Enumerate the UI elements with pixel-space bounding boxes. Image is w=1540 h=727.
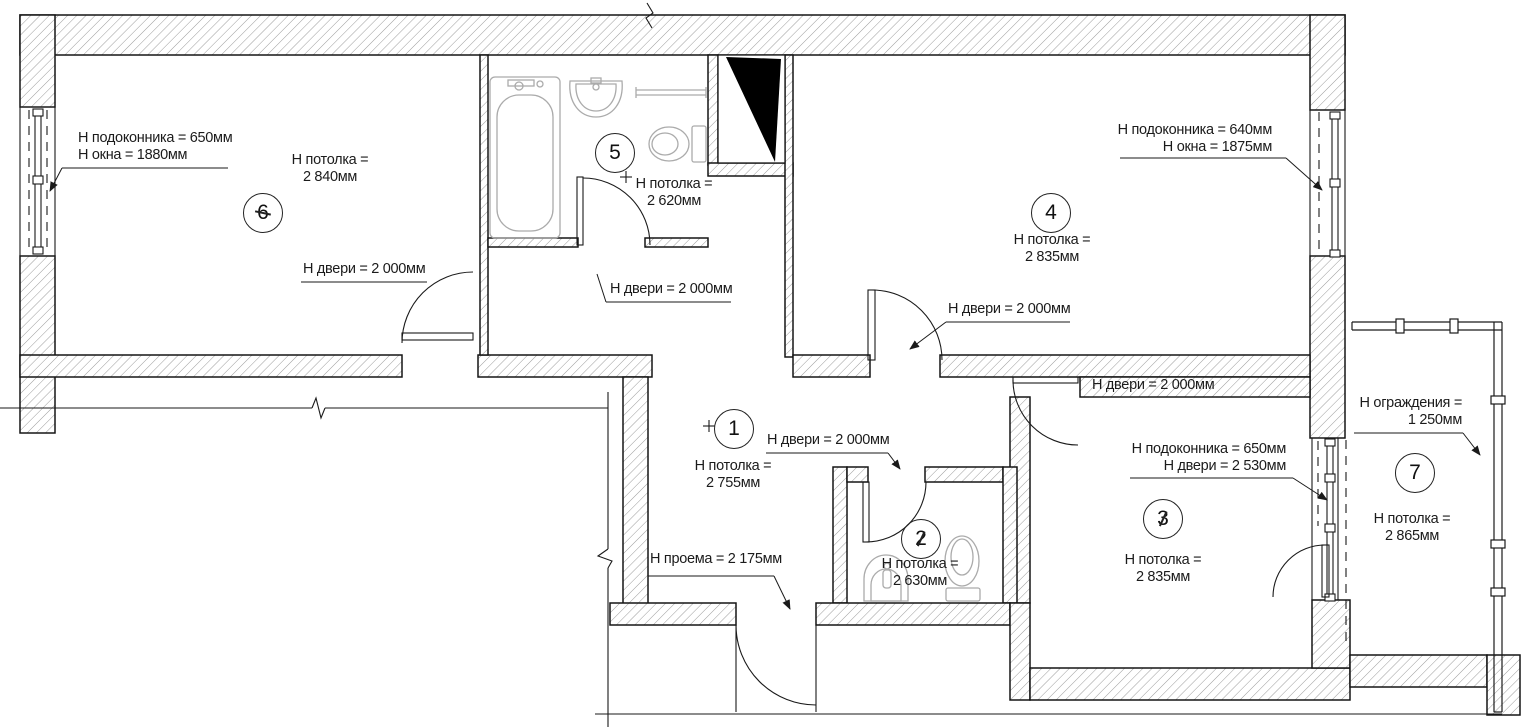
ceiling-value: 2 755мм <box>653 475 813 492</box>
ceiling-value: 2 835мм <box>1083 569 1243 586</box>
room7-ceiling-annotation: Н потолка = 2 865мм <box>1332 511 1492 544</box>
door-height-text: Н двери = 2 000мм <box>610 281 732 298</box>
sill-height-text: Н подоконника = 650мм <box>1086 441 1286 458</box>
room-number: 4 <box>1045 201 1057 225</box>
ceiling-label: Н потолка = <box>972 232 1132 249</box>
opening-height-annotation: Н проема = 2 175мм <box>650 551 782 568</box>
room3-ceiling-annotation: Н потолка = 2 835мм <box>1083 552 1243 585</box>
room-badge-5: 5 <box>595 133 635 173</box>
ceiling-value: 2 865мм <box>1332 528 1492 545</box>
bathroom-toilet <box>649 126 706 162</box>
room2-ceiling-annotation: Н потолка = 2 630мм <box>840 556 1000 589</box>
floor-plan-drawing <box>0 0 1540 727</box>
left-window-annotation: Н подоконника = 650мм Н окна = 1880мм <box>78 130 232 163</box>
railing-label: Н ограждения = <box>1302 395 1462 412</box>
ceiling-label: Н потолка = <box>1332 511 1492 528</box>
door-height-annotation-bathroom: Н двери = 2 000мм <box>610 281 732 298</box>
door-height-annotation-room3: Н двери = 2 000мм <box>1092 377 1214 394</box>
opening-height-text: Н проема = 2 175мм <box>650 551 782 568</box>
towel-rail <box>636 87 706 98</box>
bathtub <box>490 77 560 238</box>
room-badge-4: 4 <box>1031 193 1071 233</box>
door-height-annotation-room6: Н двери = 2 000мм <box>303 261 425 278</box>
door-height-annotation-room4: Н двери = 2 000мм <box>948 301 1070 318</box>
balcony-door-annotation: Н подоконника = 650мм Н двери = 2 530мм <box>1086 441 1286 474</box>
sill-height-text: Н подоконника = 640мм <box>1072 122 1272 139</box>
door-height-text: Н двери = 2 000мм <box>303 261 425 278</box>
door-height-text: Н двери = 2 000мм <box>767 432 889 449</box>
railing-annotation: Н ограждения = 1 250мм <box>1302 395 1462 428</box>
door-height-annotation-wc: Н двери = 2 000мм <box>767 432 889 449</box>
room-number: 5 <box>609 141 621 165</box>
door-height-text: Н двери = 2 000мм <box>1092 377 1214 394</box>
room-badge-6: 6 <box>243 193 283 233</box>
room5-ceiling-annotation: Н потолка = 2 620мм <box>594 176 754 209</box>
floor-plan: 1 2 3 4 5 6 7 Н подоконника = 650мм Н ок… <box>0 0 1540 727</box>
window-height-text: Н окна = 1875мм <box>1072 139 1272 156</box>
ceiling-label: Н потолка = <box>1083 552 1243 569</box>
door-height-text: Н двери = 2 000мм <box>948 301 1070 318</box>
ceiling-label: Н потолка = <box>653 458 813 475</box>
ventilation-shaft <box>718 55 785 163</box>
room-number: 7 <box>1409 461 1421 485</box>
window-left <box>20 107 55 256</box>
room1-ceiling-annotation: Н потолка = 2 755мм <box>653 458 813 491</box>
ceiling-label: Н потолка = <box>594 176 754 193</box>
room-badge-1: 1 <box>714 409 754 449</box>
ceiling-value: 2 835мм <box>972 249 1132 266</box>
right-window-annotation: Н подоконника = 640мм Н окна = 1875мм <box>1072 122 1272 155</box>
room-badge-7: 7 <box>1395 453 1435 493</box>
ceiling-value: 2 630мм <box>840 573 1000 590</box>
bathroom-sink <box>570 78 622 117</box>
ceiling-value: 2 620мм <box>594 193 754 210</box>
room-badge-3: 3 <box>1143 499 1183 539</box>
room-badge-2: 2 <box>901 519 941 559</box>
room-number: 2 <box>915 527 927 551</box>
ceiling-label: Н потолка = <box>250 152 410 169</box>
ceiling-value: 2 840мм <box>250 169 410 186</box>
room4-ceiling-annotation: Н потолка = 2 835мм <box>972 232 1132 265</box>
door-height-text: Н двери = 2 530мм <box>1086 458 1286 475</box>
room-number: 3 <box>1157 507 1169 531</box>
room6-ceiling-annotation: Н потолка = 2 840мм <box>250 152 410 185</box>
window-height-text: Н окна = 1880мм <box>78 147 232 164</box>
room-number: 6 <box>257 201 269 225</box>
railing-value: 1 250мм <box>1302 412 1462 429</box>
ceiling-label: Н потолка = <box>840 556 1000 573</box>
sill-height-text: Н подоконника = 650мм <box>78 130 232 147</box>
room-number: 1 <box>728 417 740 441</box>
